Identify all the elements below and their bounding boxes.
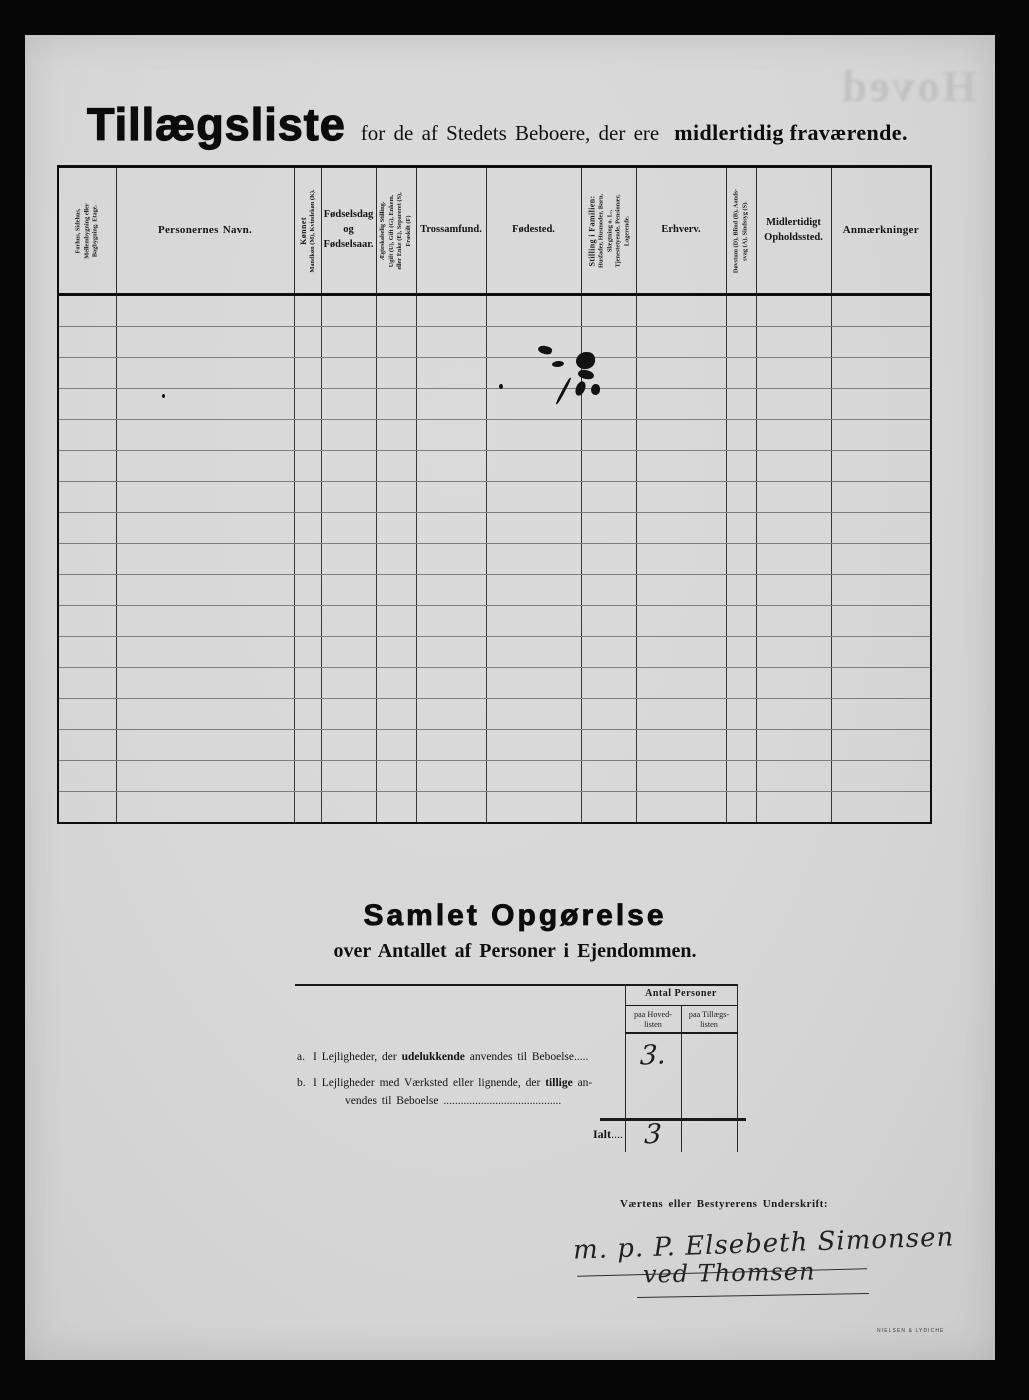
cell-anmaerkninger (831, 637, 931, 668)
cell-foedselsdag (321, 482, 376, 513)
cell-midlertidigt-opholdssted (756, 389, 831, 420)
cell-foedselsdag (321, 544, 376, 575)
cell-building (58, 668, 116, 699)
col-header-koennet: KønnetMandkøn (M), Kvindekøn (K). (294, 167, 321, 295)
cell-stilling-i-familien (581, 606, 636, 637)
cell-trossamfund (416, 606, 486, 637)
page-title-emphasis: midlertidig fraværende. (674, 120, 908, 146)
cell-trossamfund (416, 513, 486, 544)
cell-personernes-navn (116, 730, 294, 761)
cell-foedselsdag (321, 389, 376, 420)
cell-foedested (486, 420, 581, 451)
cell-midlertidigt-opholdssted (756, 637, 831, 668)
cell-midlertidigt-opholdssted (756, 295, 831, 327)
cell-erhverv (636, 295, 726, 327)
cell-trossamfund (416, 389, 486, 420)
cell-foedselsdag (321, 295, 376, 327)
table-row (58, 606, 931, 637)
cell-personernes-navn (116, 575, 294, 606)
summary-subheading: over Antallet af Personer i Ejendommen. (265, 940, 765, 963)
cell-koennet (294, 513, 321, 544)
cell-foedselsdag (321, 575, 376, 606)
summary-col-hovedlisten: paa Hoved- listen (625, 1010, 681, 1031)
col-header-stilling-i-familien: Stilling i Familien:Husfader, Husmoder, … (581, 167, 636, 295)
cell-midlertidigt-opholdssted (756, 358, 831, 389)
table-row (58, 482, 931, 513)
col-header-personernes-navn: Personernes Navn. (116, 167, 294, 295)
cell-personernes-navn (116, 606, 294, 637)
cell-trossamfund (416, 730, 486, 761)
cell-foedested (486, 295, 581, 327)
cell-anmaerkninger (831, 730, 931, 761)
cell-personernes-navn (116, 699, 294, 730)
cell-koennet (294, 668, 321, 699)
summary-row-b-text2: an- (573, 1077, 593, 1089)
cell-foedselsdag (321, 420, 376, 451)
cell-koennet (294, 358, 321, 389)
cell-trossamfund (416, 544, 486, 575)
summary-row-b-line1: b.I Lejligheder med Værksted eller ligne… (297, 1077, 592, 1089)
census-table: Forhus, Sidehus,Mellembygning ellerBagby… (57, 165, 932, 824)
cell-foedested (486, 389, 581, 420)
cell-doevstum (726, 699, 756, 730)
cell-foedselsdag (321, 699, 376, 730)
cell-koennet (294, 389, 321, 420)
summary-row-a-marker: a. (297, 1051, 313, 1063)
cell-koennet (294, 482, 321, 513)
summary-header-rule (625, 1005, 738, 1006)
cell-aegteskabelig-stilling (376, 668, 416, 699)
signature-underline (637, 1293, 869, 1298)
table-row (58, 575, 931, 606)
total-label-dots: .... (611, 1127, 623, 1141)
cell-aegteskabelig-stilling (376, 420, 416, 451)
cell-koennet (294, 730, 321, 761)
cell-anmaerkninger (831, 420, 931, 451)
cell-foedested (486, 792, 581, 824)
cell-building (58, 761, 116, 792)
cell-anmaerkninger (831, 575, 931, 606)
summary-row-a-text: I Lejligheder, der (313, 1051, 402, 1063)
cell-aegteskabelig-stilling (376, 544, 416, 575)
cell-midlertidigt-opholdssted (756, 451, 831, 482)
col-header-midlertidigt-opholdssted: Midlertidigt Opholdssted. (756, 167, 831, 295)
cell-doevstum (726, 761, 756, 792)
cell-building (58, 544, 116, 575)
cell-personernes-navn (116, 761, 294, 792)
cell-foedested (486, 482, 581, 513)
cell-foedselsdag (321, 513, 376, 544)
cell-doevstum (726, 637, 756, 668)
cell-building (58, 389, 116, 420)
cell-foedested (486, 637, 581, 668)
cell-aegteskabelig-stilling (376, 482, 416, 513)
cell-midlertidigt-opholdssted (756, 327, 831, 358)
cell-foedselsdag (321, 792, 376, 824)
cell-foedested (486, 575, 581, 606)
scanned-census-page: Hoved Tillægsliste for de af Stedets Beb… (0, 0, 1029, 1400)
cell-personernes-navn (116, 544, 294, 575)
summary-box-right-line (737, 984, 738, 1152)
cell-building (58, 295, 116, 327)
summary-subheader-rule (625, 1032, 738, 1034)
cell-building (58, 513, 116, 544)
cell-foedselsdag (321, 327, 376, 358)
cell-trossamfund (416, 327, 486, 358)
summary-count-header: Antal Personer (625, 988, 737, 999)
cell-aegteskabelig-stilling (376, 761, 416, 792)
col-header-aegteskabelig-stilling: Ægteskabelig Stilling.Ugift (U), Gift (G… (376, 167, 416, 295)
cell-koennet (294, 327, 321, 358)
cell-doevstum (726, 389, 756, 420)
cell-erhverv (636, 637, 726, 668)
cell-doevstum (726, 358, 756, 389)
cell-building (58, 575, 116, 606)
summary-heading: Samlet Opgørelse (295, 899, 735, 933)
cell-koennet (294, 606, 321, 637)
cell-building (58, 327, 116, 358)
cell-erhverv (636, 668, 726, 699)
cell-foedested (486, 761, 581, 792)
cell-aegteskabelig-stilling (376, 358, 416, 389)
cell-erhverv (636, 761, 726, 792)
cell-midlertidigt-opholdssted (756, 420, 831, 451)
total-label-text: Ialt (593, 1127, 611, 1141)
cell-personernes-navn (116, 668, 294, 699)
cell-personernes-navn (116, 513, 294, 544)
cell-midlertidigt-opholdssted (756, 761, 831, 792)
cell-foedested (486, 699, 581, 730)
col-header-foedselsdag: Fødselsdag og Fødselsaar. (321, 167, 376, 295)
cell-koennet (294, 420, 321, 451)
cell-foedested (486, 513, 581, 544)
cell-aegteskabelig-stilling (376, 606, 416, 637)
ink-blot (576, 352, 595, 369)
cell-aegteskabelig-stilling (376, 327, 416, 358)
cell-doevstum (726, 295, 756, 327)
cell-trossamfund (416, 761, 486, 792)
col-header-building: Forhus, Sidehus,Mellembygning ellerBagby… (58, 167, 116, 295)
cell-building (58, 482, 116, 513)
table-row (58, 730, 931, 761)
table-row (58, 327, 931, 358)
cell-building (58, 358, 116, 389)
cell-building (58, 730, 116, 761)
cell-erhverv (636, 606, 726, 637)
cell-foedselsdag (321, 637, 376, 668)
cell-erhverv (636, 513, 726, 544)
cell-koennet (294, 699, 321, 730)
cell-stilling-i-familien (581, 637, 636, 668)
cell-stilling-i-familien (581, 295, 636, 327)
table-row (58, 513, 931, 544)
cell-doevstum (726, 606, 756, 637)
table-row (58, 389, 931, 420)
cell-trossamfund (416, 575, 486, 606)
summary-col-tillaegslisten: paa Tillægs- listen (681, 1010, 737, 1031)
cell-koennet (294, 451, 321, 482)
cell-trossamfund (416, 358, 486, 389)
cell-doevstum (726, 513, 756, 544)
cell-stilling-i-familien (581, 544, 636, 575)
cell-midlertidigt-opholdssted (756, 606, 831, 637)
cell-foedselsdag (321, 730, 376, 761)
cell-doevstum (726, 668, 756, 699)
summary-row-b-dots: ........................................… (443, 1095, 561, 1107)
table-row (58, 544, 931, 575)
cell-aegteskabelig-stilling (376, 295, 416, 327)
table-row (58, 637, 931, 668)
cell-erhverv (636, 699, 726, 730)
cell-personernes-navn (116, 792, 294, 824)
cell-building (58, 420, 116, 451)
cell-doevstum (726, 544, 756, 575)
cell-anmaerkninger (831, 544, 931, 575)
cell-anmaerkninger (831, 761, 931, 792)
page-title-mid: for de af Stedets Beboere, der ere (361, 121, 659, 146)
table-row (58, 761, 931, 792)
cell-doevstum (726, 451, 756, 482)
table-row (58, 792, 931, 824)
cell-stilling-i-familien (581, 730, 636, 761)
cell-anmaerkninger (831, 792, 931, 824)
cell-erhverv (636, 792, 726, 824)
cell-stilling-i-familien (581, 389, 636, 420)
cell-erhverv (636, 575, 726, 606)
summary-row-b-line2: vendes til Beboelse ....................… (345, 1095, 561, 1107)
col-header-foedested: Fødested. (486, 167, 581, 295)
cell-building (58, 606, 116, 637)
page-title: Tillægsliste for de af Stedets Beboere, … (87, 99, 908, 151)
cell-koennet (294, 575, 321, 606)
census-form-paper: Hoved Tillægsliste for de af Stedets Beb… (25, 35, 995, 1360)
handwritten-count-total: 3 (624, 1118, 682, 1152)
page-title-main: Tillægsliste (87, 99, 346, 151)
cell-erhverv (636, 420, 726, 451)
cell-anmaerkninger (831, 358, 931, 389)
cell-foedselsdag (321, 668, 376, 699)
signature-label: Værtens eller Bestyrerens Underskrift: (620, 1198, 828, 1210)
cell-erhverv (636, 544, 726, 575)
summary-row-b-bold: tillige (545, 1077, 572, 1089)
cell-midlertidigt-opholdssted (756, 482, 831, 513)
cell-koennet (294, 544, 321, 575)
summary-row-a-bold: udelukkende (402, 1051, 465, 1063)
cell-midlertidigt-opholdssted (756, 730, 831, 761)
cell-anmaerkninger (831, 327, 931, 358)
cell-trossamfund (416, 295, 486, 327)
cell-stilling-i-familien (581, 513, 636, 544)
cell-midlertidigt-opholdssted (756, 699, 831, 730)
cell-foedselsdag (321, 606, 376, 637)
cell-doevstum (726, 730, 756, 761)
cell-midlertidigt-opholdssted (756, 544, 831, 575)
table-row (58, 451, 931, 482)
cell-building (58, 451, 116, 482)
cell-foedested (486, 544, 581, 575)
cell-aegteskabelig-stilling (376, 730, 416, 761)
cell-trossamfund (416, 637, 486, 668)
cell-stilling-i-familien (581, 699, 636, 730)
cell-aegteskabelig-stilling (376, 575, 416, 606)
cell-erhverv (636, 451, 726, 482)
cell-doevstum (726, 327, 756, 358)
cell-erhverv (636, 327, 726, 358)
table-row (58, 699, 931, 730)
cell-stilling-i-familien (581, 482, 636, 513)
cell-doevstum (726, 792, 756, 824)
cell-aegteskabelig-stilling (376, 792, 416, 824)
col-header-anmaerkninger: Anmærkninger (831, 167, 931, 295)
summary-row-b-marker: b. (297, 1077, 313, 1089)
cell-foedested (486, 606, 581, 637)
cell-trossamfund (416, 792, 486, 824)
ink-blot (499, 384, 503, 389)
cell-personernes-navn (116, 389, 294, 420)
cell-stilling-i-familien (581, 792, 636, 824)
cell-personernes-navn (116, 327, 294, 358)
cell-personernes-navn (116, 637, 294, 668)
table-row (58, 668, 931, 699)
cell-personernes-navn (116, 420, 294, 451)
cell-stilling-i-familien (581, 451, 636, 482)
cell-doevstum (726, 420, 756, 451)
cell-foedselsdag (321, 451, 376, 482)
cell-anmaerkninger (831, 668, 931, 699)
cell-trossamfund (416, 668, 486, 699)
cell-trossamfund (416, 451, 486, 482)
cell-aegteskabelig-stilling (376, 451, 416, 482)
cell-erhverv (636, 730, 726, 761)
cell-koennet (294, 295, 321, 327)
cell-stilling-i-familien (581, 420, 636, 451)
cell-anmaerkninger (831, 699, 931, 730)
cell-stilling-i-familien (581, 668, 636, 699)
cell-koennet (294, 761, 321, 792)
cell-midlertidigt-opholdssted (756, 668, 831, 699)
cell-midlertidigt-opholdssted (756, 575, 831, 606)
col-header-erhverv: Erhverv. (636, 167, 726, 295)
cell-erhverv (636, 358, 726, 389)
table-row (58, 295, 931, 327)
cell-aegteskabelig-stilling (376, 389, 416, 420)
cell-koennet (294, 637, 321, 668)
summary-row-b-text: I Lejligheder med Værksted eller lignend… (313, 1077, 545, 1089)
cell-anmaerkninger (831, 513, 931, 544)
summary-row-a-dots: ..... (574, 1051, 588, 1063)
cell-erhverv (636, 482, 726, 513)
summary-row-a: a.I Lejligheder, der udelukkende anvende… (297, 1051, 588, 1063)
cell-trossamfund (416, 482, 486, 513)
cell-doevstum (726, 575, 756, 606)
table-row (58, 420, 931, 451)
ink-blot (162, 394, 165, 398)
cell-stilling-i-familien (581, 761, 636, 792)
cell-anmaerkninger (831, 451, 931, 482)
cell-aegteskabelig-stilling (376, 637, 416, 668)
cell-trossamfund (416, 420, 486, 451)
cell-personernes-navn (116, 358, 294, 389)
cell-foedested (486, 668, 581, 699)
cell-midlertidigt-opholdssted (756, 792, 831, 824)
cell-personernes-navn (116, 482, 294, 513)
cell-trossamfund (416, 699, 486, 730)
cell-midlertidigt-opholdssted (756, 513, 831, 544)
handwritten-count-a: 3. (624, 1039, 682, 1073)
printer-mark: NIELSEN & LYDICHE (877, 1328, 945, 1334)
cell-anmaerkninger (831, 295, 931, 327)
cell-personernes-navn (116, 451, 294, 482)
cell-foedselsdag (321, 761, 376, 792)
total-label: Ialt.... (525, 1127, 623, 1142)
col-header-trossamfund: Trossamfund. (416, 167, 486, 295)
cell-anmaerkninger (831, 482, 931, 513)
col-header-doevstum: Døvstum (D), Blind (B), Aands-svag (A), … (726, 167, 756, 295)
table-row (58, 358, 931, 389)
cell-foedested (486, 451, 581, 482)
cell-koennet (294, 792, 321, 824)
cell-foedested (486, 327, 581, 358)
ink-blot (591, 384, 600, 395)
cell-doevstum (726, 482, 756, 513)
summary-row-a-text2: anvendes til Beboelse (465, 1051, 574, 1063)
cell-anmaerkninger (831, 606, 931, 637)
cell-foedselsdag (321, 358, 376, 389)
cell-building (58, 792, 116, 824)
cell-anmaerkninger (831, 389, 931, 420)
cell-foedested (486, 730, 581, 761)
cell-building (58, 637, 116, 668)
cell-erhverv (636, 389, 726, 420)
cell-stilling-i-familien (581, 575, 636, 606)
summary-row-b-text3: vendes til Beboelse (345, 1095, 443, 1107)
cell-building (58, 699, 116, 730)
cell-aegteskabelig-stilling (376, 699, 416, 730)
cell-aegteskabelig-stilling (376, 513, 416, 544)
summary-top-rule (295, 984, 737, 986)
cell-personernes-navn (116, 295, 294, 327)
